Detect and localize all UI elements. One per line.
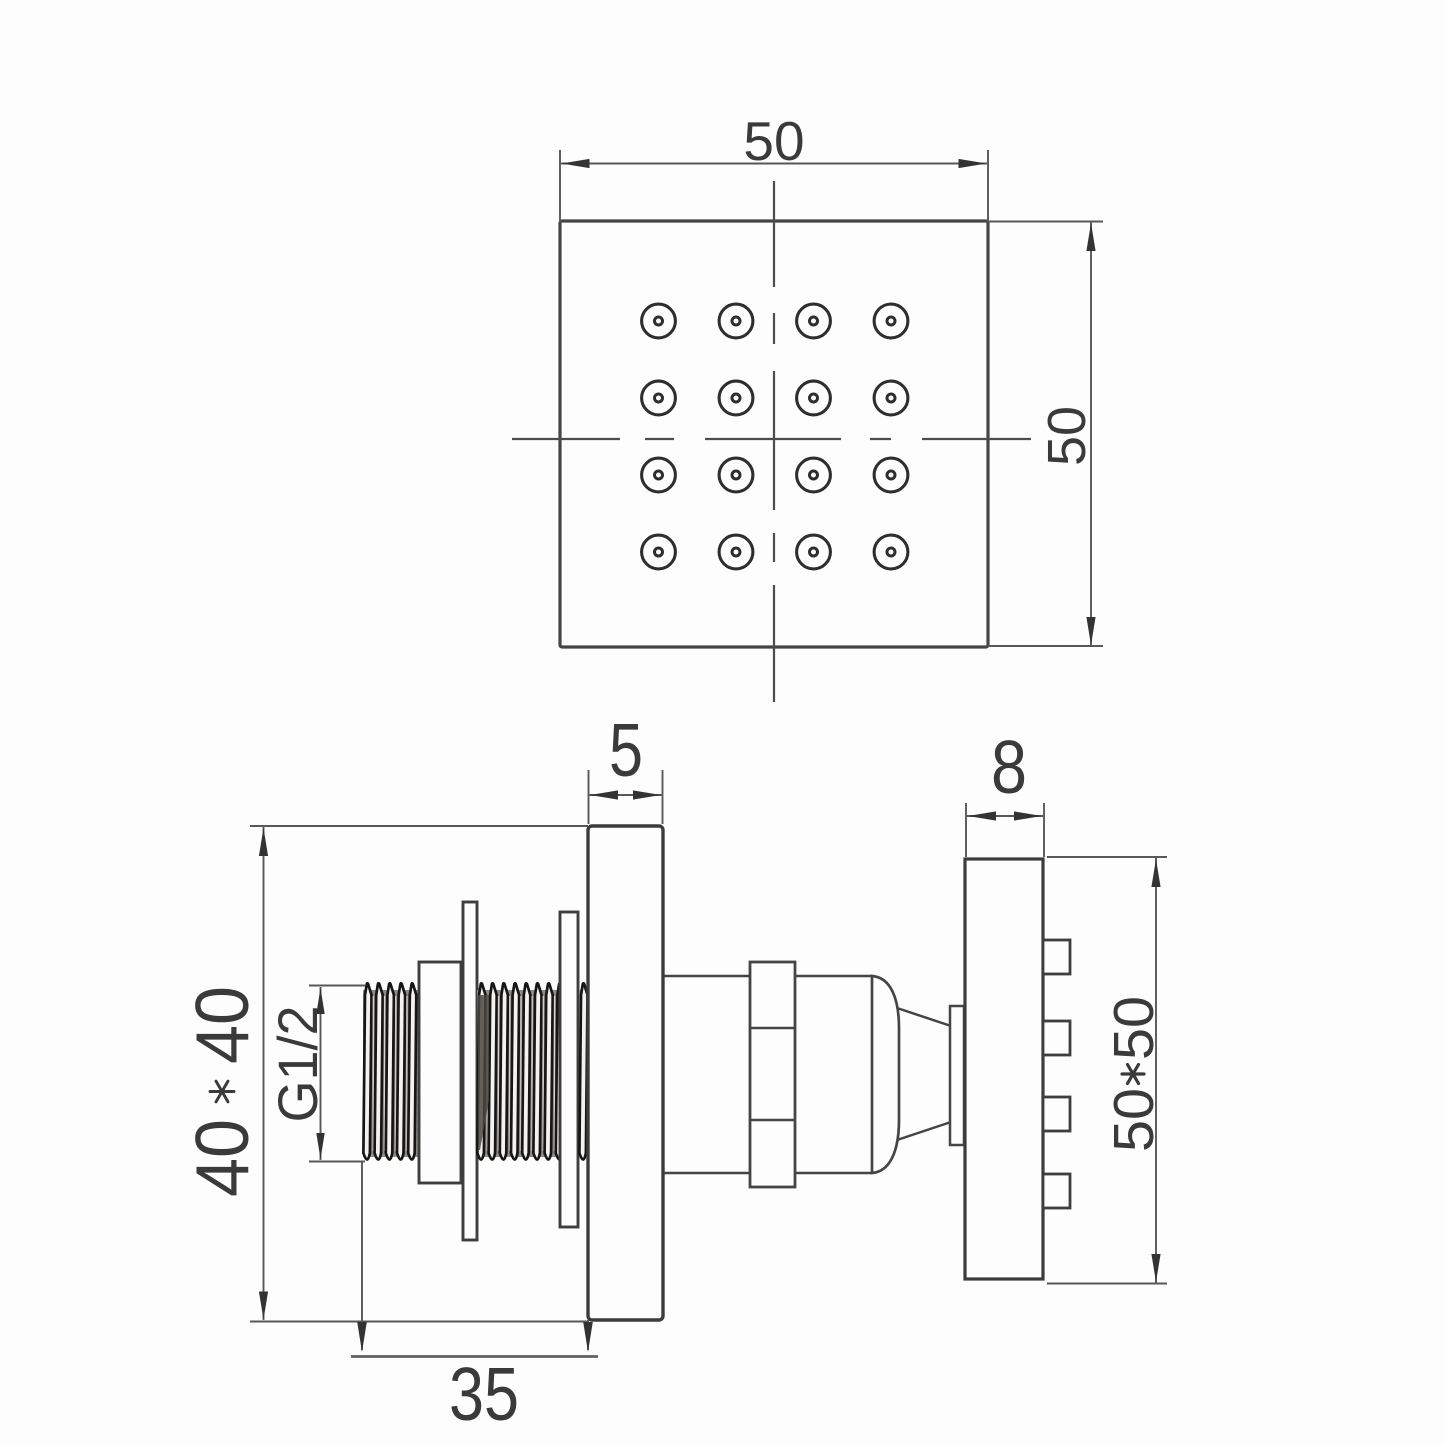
svg-text:40: 40 bbox=[180, 986, 264, 1064]
svg-text:50: 50 bbox=[1102, 1088, 1166, 1152]
svg-text:8: 8 bbox=[991, 725, 1027, 809]
svg-text:50: 50 bbox=[1037, 406, 1097, 466]
svg-text:5: 5 bbox=[609, 708, 643, 792]
svg-text:50: 50 bbox=[743, 110, 804, 172]
svg-text:40: 40 bbox=[180, 1119, 264, 1197]
svg-text:50: 50 bbox=[1102, 996, 1166, 1060]
svg-text:G1/2: G1/2 bbox=[266, 1006, 329, 1123]
svg-text:35: 35 bbox=[449, 1352, 519, 1436]
